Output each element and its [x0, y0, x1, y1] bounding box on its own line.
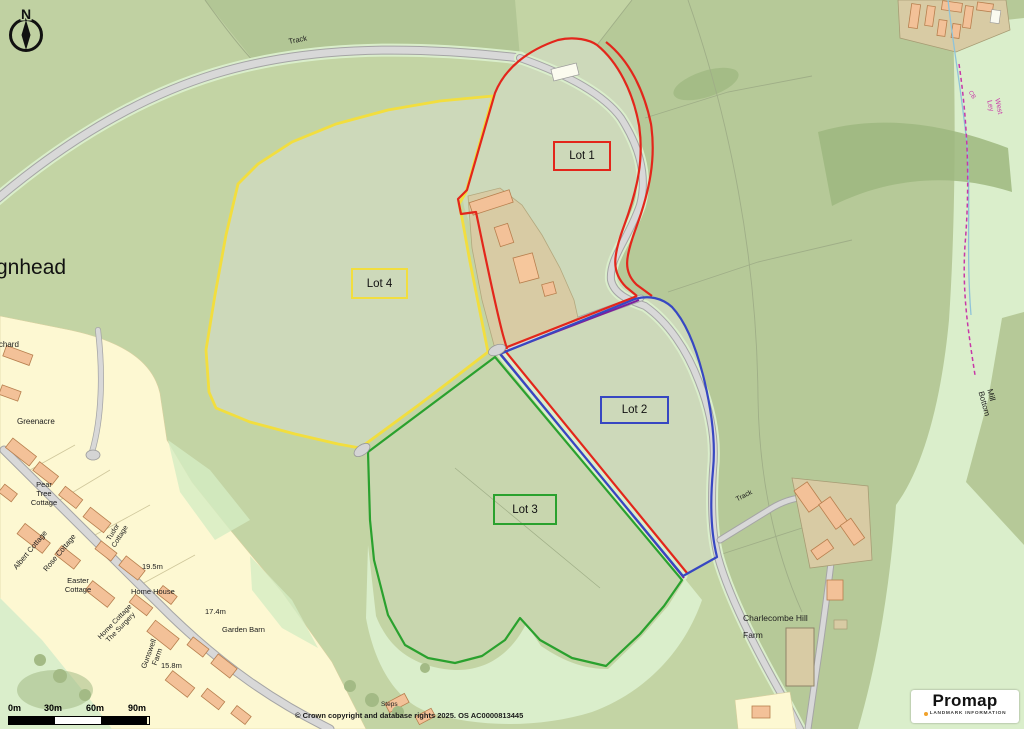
compass-needle — [22, 20, 31, 50]
scale-tick-90: 90m — [128, 703, 146, 713]
promap-tagline-text: LANDMARK INFORMATION — [930, 711, 1007, 716]
scale-tick-30: 30m — [44, 703, 62, 713]
lot1-label-box[interactable]: Lot 1 — [553, 141, 611, 171]
compass-north-letter: N — [21, 6, 31, 22]
lot4-label: Lot 4 — [367, 278, 393, 290]
promap-brand-text: Promap — [911, 691, 1019, 711]
map-canvas[interactable] — [0, 0, 1024, 729]
lot3-label-box[interactable]: Lot 3 — [493, 494, 557, 525]
lot4-label-box[interactable]: Lot 4 — [351, 268, 408, 299]
logo-dot-icon — [924, 712, 928, 716]
promap-logo: Promap LANDMARK INFORMATION — [911, 690, 1019, 723]
scale-tick-0: 0m — [8, 703, 21, 713]
scale-tick-60: 60m — [86, 703, 104, 713]
lot3-label: Lot 3 — [512, 504, 538, 516]
copyright-notice: © Crown copyright and database rights 20… — [295, 711, 523, 720]
lot2-label-box[interactable]: Lot 2 — [600, 396, 669, 424]
lot2-label: Lot 2 — [622, 404, 648, 416]
scale-bar-rule — [8, 716, 150, 725]
scale-bar: 0m 30m 60m 90m — [8, 703, 158, 727]
compass-rose: N — [2, 5, 52, 61]
lot1-label: Lot 1 — [569, 150, 595, 162]
map-viewport[interactable]: N Lot 1 Lot 2 Lot 3 Lot 4 Track gnhead O… — [0, 0, 1024, 729]
